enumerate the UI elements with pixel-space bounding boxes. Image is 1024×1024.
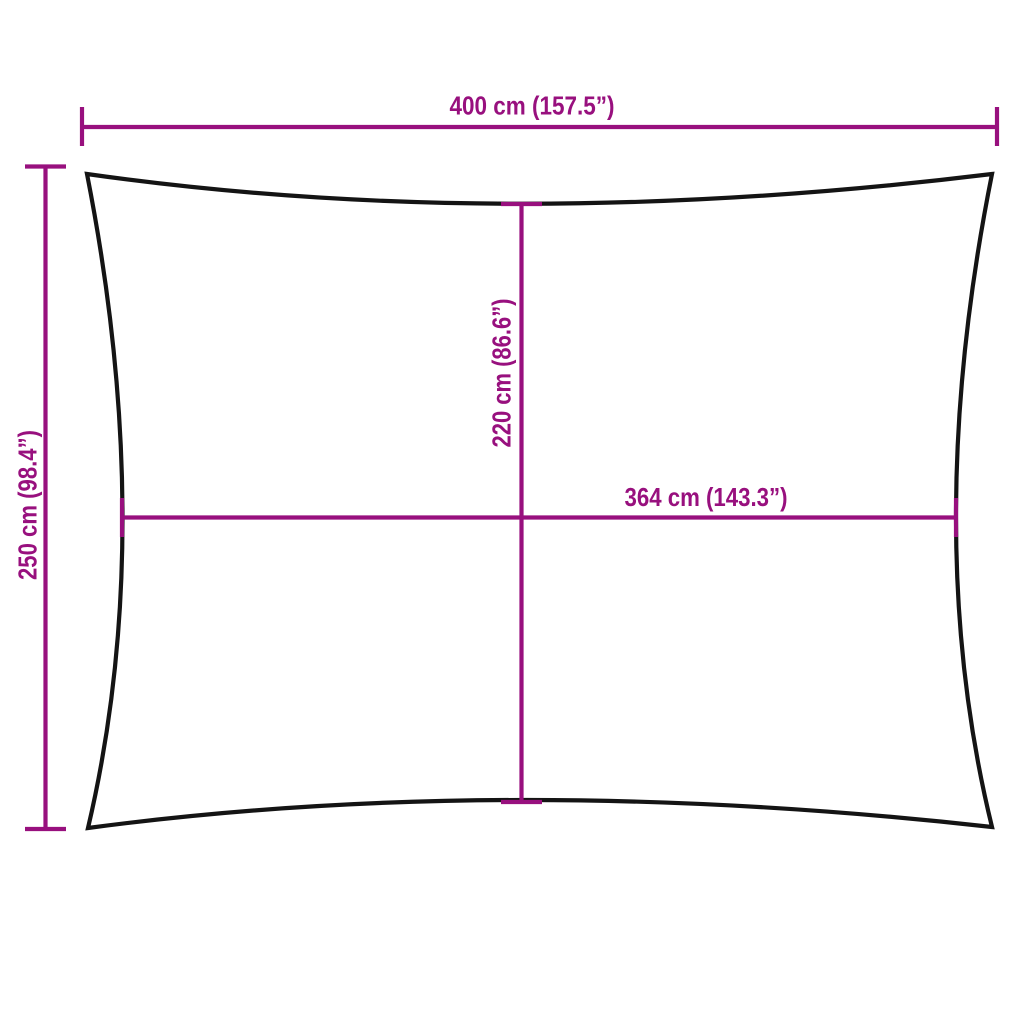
svg-text:250 cm (98.4”): 250 cm (98.4”) bbox=[13, 430, 43, 580]
svg-text:400 cm (157.5”): 400 cm (157.5”) bbox=[450, 91, 615, 121]
svg-text:220 cm (86.6”): 220 cm (86.6”) bbox=[487, 299, 517, 448]
svg-text:364 cm (143.3”): 364 cm (143.3”) bbox=[625, 482, 788, 512]
